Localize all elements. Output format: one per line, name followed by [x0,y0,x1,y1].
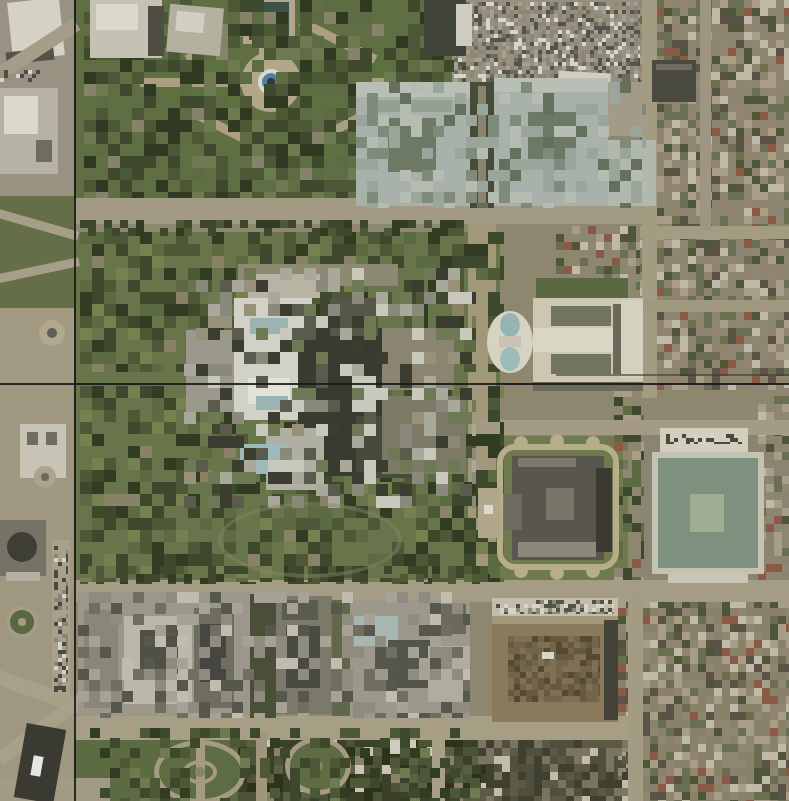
mosaic-cell [254,691,265,702]
mosaic-cell [636,266,640,274]
mosaic-cell [784,16,789,24]
mosaic-cell [682,712,690,720]
mosaic-cell [706,632,714,640]
mosaic-cell [658,712,666,720]
mosaic-cell [166,592,177,603]
mosaic-cell [776,80,784,88]
mosaic-cell [488,268,500,280]
mosaic-cell [543,104,554,115]
mosaic-cell [752,256,760,264]
mosaic-cell [558,780,566,788]
mosaic-cell [782,548,789,556]
mosaic-cell [208,316,220,328]
mosaic-cell [632,559,641,568]
mosaic-cell [166,691,177,702]
mosaic-cell [736,312,744,320]
mosaic-cell [746,728,754,736]
mosaic-cell [228,12,240,24]
mosaic-cell [304,376,316,388]
mosaic-cell [92,482,104,494]
mosaic-cell [120,60,132,72]
mosaic-cell [682,768,690,776]
mosaic-cell [688,184,696,192]
mosaic-cell [190,728,200,738]
mosaic-cell [754,744,762,752]
mosaic-cell [111,603,122,614]
mosaic-cell [760,152,768,160]
mosaic-cell [200,582,208,584]
mosaic-cell [120,220,128,228]
mosaic-cell [510,748,518,756]
mosaic-cell [762,656,770,664]
mosaic-cell [752,336,760,344]
mosaic-cell [556,266,564,274]
mosaic-cell [276,702,287,713]
mosaic-cell [367,104,378,115]
mosaic-cell [580,696,586,702]
mosaic-cell [784,104,789,112]
mosaic-cell [754,616,762,624]
mosaic-cell [680,336,688,344]
mosaic-cell [466,115,477,126]
mosaic-cell [466,148,477,159]
mosaic-cell [324,60,336,72]
mosaic-cell [208,412,220,424]
mosaic-cell [688,128,696,136]
mosaic-cell [730,712,738,720]
mosaic-cell [80,530,92,542]
mosaic-cell [620,170,631,181]
mosaic-cell [441,702,452,713]
mosaic-cell [656,288,664,296]
mosaic-cell [168,582,176,584]
mosaic-cell [672,40,680,48]
left-plaza [0,308,74,384]
mosaic-cell [276,24,288,36]
mosaic-cell [416,530,428,542]
mosaic-cell [378,126,389,137]
mosaic-cell [364,316,376,328]
mosaic-cell [580,226,588,234]
mosaic-cell [276,108,288,120]
mosaic-cell [706,672,714,680]
mosaic-cell [582,780,590,788]
mosaic-cell [736,328,744,336]
mosaic-cell [340,364,352,376]
mosaic-cell [631,170,642,181]
mosaic-cell [80,410,92,422]
mosaic-cell [92,244,104,256]
mosaic-cell [433,203,444,208]
mosaic-cell [494,756,502,764]
mosaic-cell [116,554,128,566]
mosaic-cell [204,192,216,198]
mosaic-cell [690,760,698,768]
mosaic-cell [500,386,504,398]
mosaic-cell [324,12,336,24]
mosaic-cell [736,104,744,112]
mosaic-cell [714,624,722,632]
mosaic-cell [256,424,268,436]
mosaic-cell [641,442,644,451]
mosaic-cell [590,796,598,801]
mosaic-cell [66,678,68,682]
mosaic-cell [155,669,166,680]
mosaic-cell [360,778,370,788]
mosaic-cell [128,386,140,398]
mosaic-cell [440,256,452,268]
mosaic-cell [433,126,444,137]
mosaic-cell [778,792,786,800]
mosaic-cell [464,566,472,574]
mosaic-cell [650,680,658,688]
mosaic-cell [220,496,232,508]
mosaic-cell [782,444,789,452]
mosaic-cell [784,72,789,80]
mosaic-cell [228,0,240,12]
mosaic-cell [200,542,212,554]
mosaic-cell [682,632,690,640]
mosaic-cell [728,16,736,24]
mosaic-cell [784,152,789,160]
mosaic-cell [408,36,420,48]
mosaic-cell [612,242,620,250]
satellite-map-viewport[interactable] [0,0,789,801]
mosaic-cell [682,704,690,712]
mosaic-cell [152,398,164,410]
mosaic-cell [744,56,752,64]
mosaic-cell [682,736,690,744]
mosaic-cell [672,240,680,248]
mosaic-cell [760,8,768,16]
mosaic-cell [152,386,164,398]
mosaic-cell [521,82,532,93]
mosaic-cell [386,647,397,658]
mosaic-cell [744,280,752,288]
mosaic-cell [722,672,730,680]
mosaic-cell [760,168,768,176]
mosaic-cell [360,228,368,236]
mosaic-cell [320,228,328,236]
mosaic-cell [623,478,632,487]
mosaic-cell [268,472,280,484]
mosaic-cell [450,728,460,738]
mosaic-cell [312,156,324,168]
mosaic-cell [268,304,280,316]
mosaic-cell [244,472,256,484]
mosaic-cell [412,280,424,292]
mosaic-cell [88,228,96,236]
mosaic-cell [252,36,264,48]
mosaic-cell [116,506,128,518]
mosaic-cell [641,451,644,460]
mosaic-cell [620,203,631,208]
mosaic-cell [80,434,92,446]
mosaic-cell [754,680,762,688]
mosaic-cell [344,228,352,236]
mosaic-cell [316,484,328,496]
mosaic-cell [116,364,128,372]
mosaic-cell [642,744,650,752]
mosaic-cell [680,16,688,24]
mosaic-cell [770,680,778,688]
mosaic-cell [623,451,632,460]
mosaic-cell [658,720,666,728]
mosaic-cell [208,582,216,584]
mosaic-cell [688,264,696,272]
mosaic-cell [84,156,96,168]
mosaic-cell [628,266,636,274]
mosaic-cell [714,720,722,728]
mosaic-cell [216,108,228,120]
mosaic-cell [564,266,572,274]
mosaic-cell [200,554,212,566]
mosaic-cell [576,104,587,115]
mosaic-cell [412,412,424,424]
mosaic-cell [574,780,582,788]
mosaic-cell [542,788,550,796]
mosaic-cell [177,691,188,702]
mosaic-cell [336,180,348,192]
mosaic-cell [754,696,762,704]
mosaic-cell [706,640,714,648]
mosaic-cell [784,336,789,344]
mosaic-cell [754,656,762,664]
mosaic-cell [598,796,606,801]
mosaic-cell [706,720,714,728]
mosaic-cell [316,460,328,472]
mosaic-cell [656,248,664,256]
mosaic-cell [672,216,680,224]
mosaic-cell [264,36,276,48]
mosaic-cell [596,250,604,258]
mosaic-cell [452,256,464,268]
mosaic-cell [722,720,730,728]
mosaic-cell [128,566,136,574]
mosaic-cell [784,0,789,8]
mosaic-cell [686,442,690,444]
parking-lot-cars [454,2,640,82]
mosaic-cell [706,792,714,800]
mosaic-cell [199,713,210,718]
mosaic-cell [722,608,730,616]
mosaic-cell [666,664,674,672]
mosaic-cell [636,250,640,258]
mosaic-cell [609,159,620,170]
mosaic-cell [752,176,760,184]
mosaic-cell [766,468,774,476]
mosaic-cell [642,664,650,672]
mosaic-cell [494,46,498,50]
mosaic-cell [300,132,312,144]
mosaic-cell [696,336,704,344]
mosaic-cell [632,523,641,532]
mosaic-cell [310,768,320,778]
mosaic-cell [666,648,674,656]
mosaic-cell [688,192,696,200]
mosaic-cell [722,776,730,784]
mosaic-cell [754,784,762,792]
mosaic-cell [672,352,680,360]
mosaic-cell [208,228,216,236]
mosaic-cell [736,112,744,120]
mosaic-cell [658,696,666,704]
mosaic-cell [356,137,367,148]
mosaic-cell [300,168,312,180]
mosaic-cell [782,532,789,540]
mosaic-cell [736,160,744,168]
mosaic-cell [728,312,736,320]
mosaic-cell [768,152,776,160]
mosaic-cell [144,132,156,144]
mosaic-cell [392,244,404,256]
mosaic-cell [328,316,340,328]
mosaic-cell [774,452,782,460]
mosaic-cell [642,712,650,720]
mosaic-cell [308,244,320,256]
mosaic-cell [632,487,641,496]
mosaic-cell [452,244,464,256]
mosaic-cell [664,0,672,8]
mosaic-cell [132,72,144,84]
mosaic-cell [550,748,558,756]
mosaic-cell [280,340,292,352]
mosaic-cell [240,758,250,768]
mosaic-cell [264,120,276,132]
mosaic-cell [784,344,789,352]
mosaic-cell [720,152,728,160]
mosaic-cell [136,228,144,236]
parked-cars-left-street [54,546,68,692]
mosaic-cell [104,280,116,292]
mosaic-cell [78,647,89,658]
mosaic-cell [287,625,298,636]
mosaic-cell [736,352,744,360]
mosaic-cell [360,0,372,12]
mosaic-cell [460,788,470,798]
mosaic-cell [456,228,464,236]
mosaic-cell [642,752,650,760]
mosaic-cell [340,788,350,798]
mosaic-cell [268,424,280,436]
mosaic-cell [378,148,389,159]
mosaic-cell [336,60,348,72]
mosaic-cell [400,220,408,228]
mosaic-cell [140,422,152,434]
bottom-park-trees [80,728,480,801]
mosaic-cell [177,614,188,625]
mosaic-cell [408,566,416,574]
mosaic-cell [760,280,768,288]
mosaic-cell [320,220,328,228]
mosaic-cell [476,268,488,280]
mosaic-cell [656,336,664,344]
mosaic-cell [704,264,712,272]
mosaic-cell [316,280,328,292]
mosaic-cell [784,48,789,56]
mosaic-cell [316,376,328,388]
mosaic-cell [232,496,244,508]
mosaic-cell [92,268,104,280]
mosaic-cell [642,696,650,704]
mosaic-cell [232,566,240,574]
mosaic-cell [228,36,240,48]
mosaic-cell [760,352,768,360]
mosaic-cell [656,264,664,272]
mosaic-cell [184,582,192,584]
mosaic-cell [730,664,738,672]
mosaic-cell [736,72,744,80]
mosaic-cell [688,160,696,168]
mosaic-cell [776,240,784,248]
monument-statue [47,328,57,338]
mosaic-cell [276,120,288,132]
mosaic-cell [596,234,604,242]
mosaic-cell [752,112,760,120]
mosaic-cell [436,472,448,484]
mosaic-cell [752,136,760,144]
mosaic-cell [722,632,730,640]
mosaic-cell [776,320,784,328]
mosaic-cell [672,128,680,136]
mosaic-cell [352,280,364,292]
mosaic-cell [680,120,688,128]
mosaic-cell [430,636,441,647]
oval-center-bar [499,336,521,347]
mosaic-cell [272,220,280,228]
mosaic-cell [324,132,336,144]
mosaic-cell [664,40,672,48]
mosaic-cell [502,764,510,772]
mosaic-cell [92,292,104,304]
mosaic-cell [240,108,252,120]
mosaic-cell [696,280,704,288]
mosaic-cell [752,264,760,272]
mosaic-cell [746,736,754,744]
mosaic-cell [752,160,760,168]
mosaic-cell [542,740,550,748]
mosaic-cell [760,160,768,168]
mosaic-cell [400,448,412,460]
mosaic-cell [216,574,224,582]
mosaic-cell [666,640,674,648]
mosaic-cell [344,220,352,228]
mosaic-cell [758,436,766,444]
mosaic-cell [598,170,609,181]
mosaic-cell [364,412,376,424]
mosaic-cell [288,120,300,132]
mosaic-cell [448,436,460,448]
mosaic-cell [664,360,672,368]
mosaic-cell [464,530,476,542]
mosaic-cell [688,256,696,264]
mosaic-cell [768,128,776,136]
mosaic-cell [714,680,722,688]
parked-cars-top-left [0,70,40,82]
mosaic-cell [412,472,424,484]
mosaic-cell [352,400,364,412]
mosaic-cell [680,360,688,368]
mosaic-cell [92,470,104,482]
mosaic-cell [754,648,762,656]
mosaic-cell [488,115,499,126]
mosaic-cell [472,496,476,508]
mosaic-cell [188,669,199,680]
mosaic-cell [682,784,690,792]
mosaic-cell [298,691,309,702]
mosaic-cell [688,360,696,368]
mosaic-cell [642,648,650,656]
